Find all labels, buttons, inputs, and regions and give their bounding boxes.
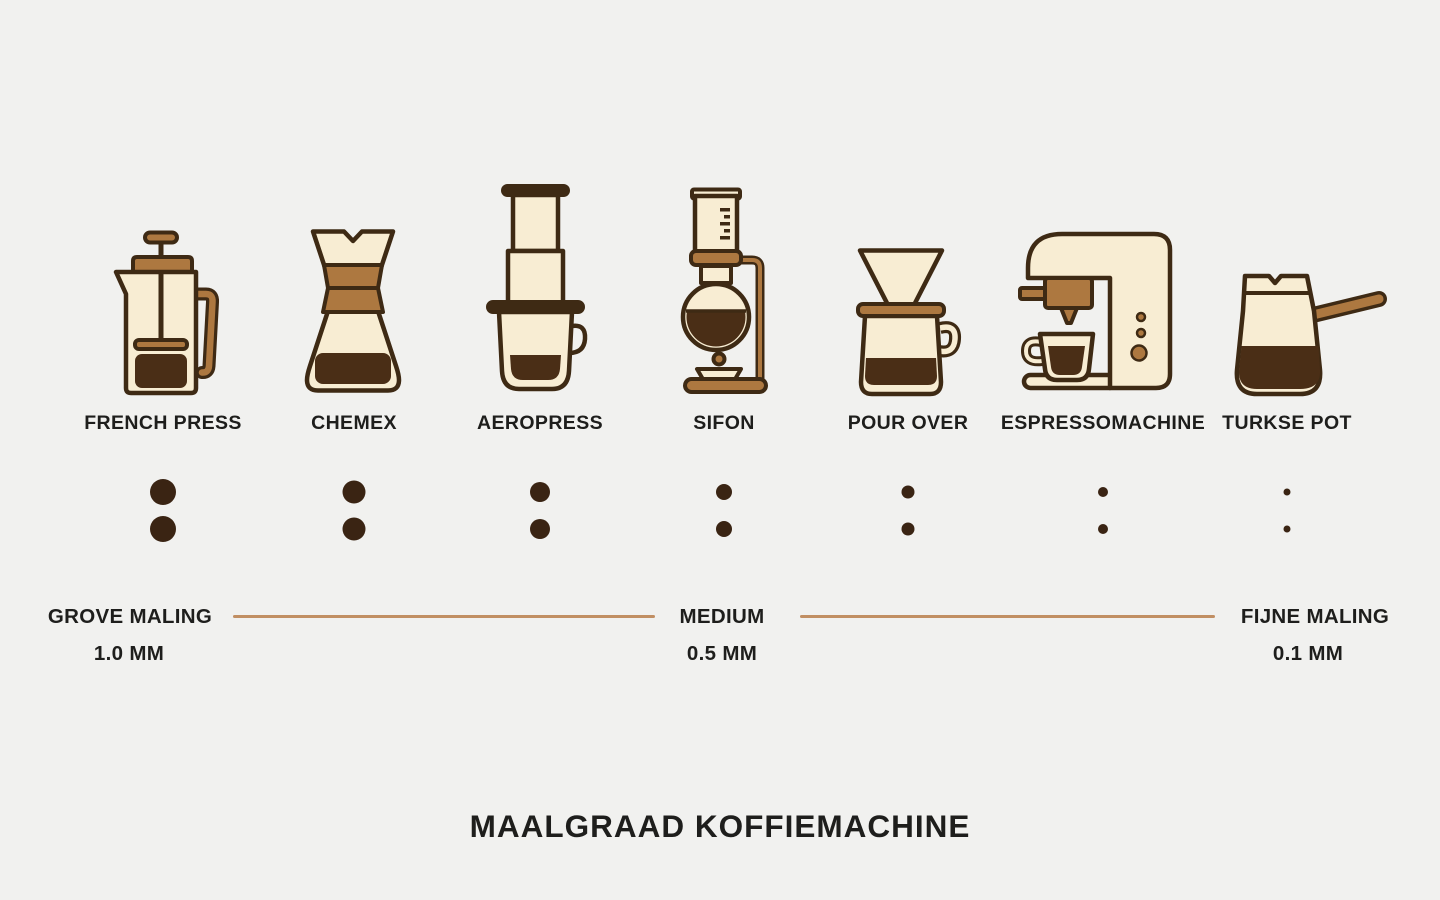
scale-value-medium: 0.5 MM [687,642,757,666]
grind-dot-sifon-1 [716,484,732,500]
scale-line-right [800,615,1215,618]
scale-label-medium: MEDIUM [680,605,765,629]
grind-dot-pour-over-1 [902,486,915,499]
pour-over-icon [852,248,964,398]
grind-dot-chemex-2 [343,518,366,541]
aeropress-icon [482,183,597,398]
page-title: MAALGRAAD KOFFIEMACHINE [470,808,971,845]
espressomachine-icon [1014,228,1176,398]
method-label-french-press: FRENCH PRESS [84,412,242,435]
method-label-aeropress: AEROPRESS [477,412,603,435]
method-label-pour-over: POUR OVER [848,412,969,435]
chemex-icon [303,229,403,395]
turkse-pot-slot [1233,273,1391,401]
grind-dot-aeropress-2 [530,519,550,539]
scale-label-coarse: GROVE MALING [48,605,212,629]
grind-dot-turkse-pot-1 [1284,489,1291,496]
sifon-icon [680,187,775,399]
grind-dot-chemex-1 [343,481,366,504]
infographic-canvas: FRENCH PRESS CHEMEX AEROPRESS [0,0,1440,900]
chemex-slot [303,229,403,395]
grind-dot-espressomachine-1 [1098,487,1108,497]
grind-dot-aeropress-1 [530,482,550,502]
pour-over-slot [852,248,964,398]
scale-line-left [233,615,655,618]
grind-dot-espressomachine-2 [1098,524,1108,534]
turkse-pot-icon [1233,273,1391,401]
method-label-espressomachine: ESPRESSOMACHINE [1001,412,1205,435]
espressomachine-slot [1014,228,1176,398]
grind-dot-sifon-2 [716,521,732,537]
method-label-turkse-pot: TURKSE POT [1222,412,1352,435]
scale-value-fine: 0.1 MM [1273,642,1343,666]
sifon-slot [680,187,775,399]
method-label-sifon: SIFON [693,412,755,435]
grind-dot-turkse-pot-2 [1284,526,1291,533]
grind-dot-pour-over-2 [902,523,915,536]
grind-dot-french-press-2 [150,516,176,542]
scale-label-fine: FIJNE MALING [1241,605,1389,629]
aeropress-slot [482,183,597,398]
scale-value-coarse: 1.0 MM [94,642,164,666]
grind-dot-french-press-1 [150,479,176,505]
method-label-chemex: CHEMEX [311,412,397,435]
french-press-icon [112,230,222,398]
french-press-slot [112,230,222,398]
